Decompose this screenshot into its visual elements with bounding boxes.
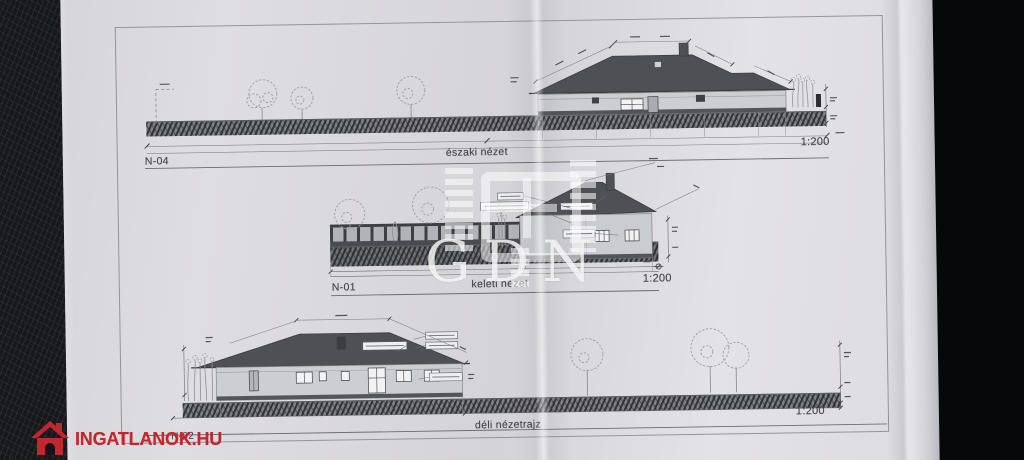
extension-lines (542, 112, 785, 140)
north-roof-vent (654, 61, 661, 67)
dimension-line (826, 84, 827, 127)
title-underline (331, 291, 659, 296)
tree-sketches (247, 76, 425, 110)
house-icon (30, 420, 70, 458)
south-view-title: déli nézetrajz (453, 418, 563, 432)
east-view-id: N-01 (332, 281, 356, 293)
tall-plant-sketch (497, 207, 508, 246)
north-roof (533, 53, 790, 93)
east-chimney (606, 173, 614, 190)
north-view-scale: 1:200 (801, 136, 830, 148)
scanned-elevation-sheet-photo: N-04 északi nézet 1:200 N-01 keleti néze… (0, 0, 1024, 460)
south-chimney (337, 336, 346, 349)
east-view-title: keleti nézet (457, 277, 543, 290)
south-roof (197, 332, 464, 368)
north-view-title: északi nézet (425, 146, 529, 160)
marker-post (816, 94, 821, 107)
sheet-content: N-04 északi nézet 1:200 N-01 keleti néze… (54, 0, 940, 460)
south-elevation (141, 307, 887, 436)
tree-sketches (334, 187, 449, 230)
south-view-scale: 1:200 (796, 405, 825, 417)
portal-watermark-text: INGATLANOK.HU (75, 429, 222, 450)
paper-sheet: N-04 északi nézet 1:200 N-01 keleti néze… (60, 0, 940, 460)
north-chimney (679, 43, 688, 56)
elevation-drawings (54, 0, 940, 460)
reed-sketch (791, 74, 815, 108)
north-view-id: N-04 (145, 155, 169, 167)
title-underline (145, 158, 829, 169)
tree-sketches (571, 328, 750, 371)
tree-trunks (262, 104, 411, 119)
reed-sketch (186, 353, 215, 401)
east-view-scale: 1:200 (643, 272, 672, 284)
boundary-dashed-line (156, 89, 175, 123)
north-door (648, 97, 658, 113)
tree-trunks (587, 365, 736, 395)
east-roof (515, 182, 656, 218)
portal-watermark: INGATLANOK.HU (30, 419, 222, 459)
cypress-sketch (392, 222, 398, 242)
